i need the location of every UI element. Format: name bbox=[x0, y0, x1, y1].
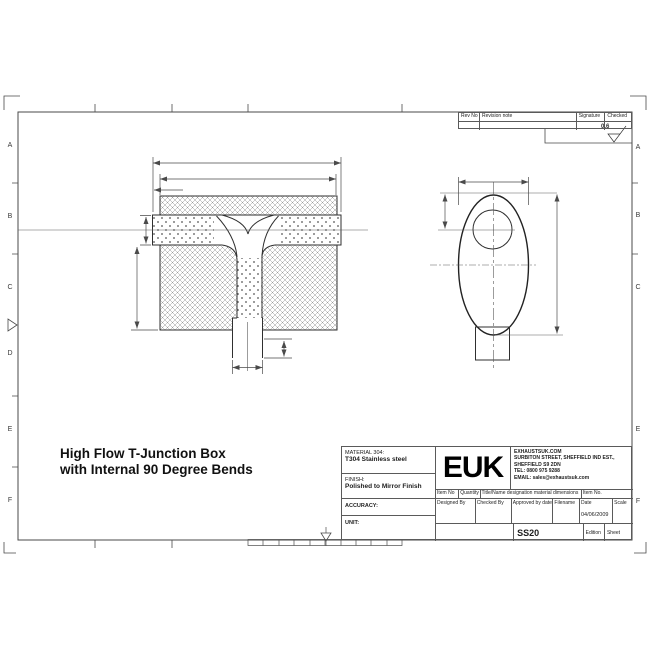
row-label-right-b: B bbox=[633, 212, 643, 220]
drawing-note-line2: with Internal 90 Degree Bends bbox=[60, 462, 253, 478]
row-label-left-e: E bbox=[5, 426, 15, 434]
company-logo: EUK bbox=[436, 447, 511, 490]
row-label-left-d: D bbox=[5, 350, 15, 358]
revision-note-header: Revision note bbox=[480, 113, 577, 121]
accuracy-cell: ACCURACY: bbox=[342, 499, 436, 516]
left-centering-mark bbox=[8, 319, 17, 331]
scale-cell: Scale bbox=[613, 499, 633, 523]
row-label-left-b: B bbox=[5, 213, 15, 221]
main-section-view bbox=[18, 157, 368, 374]
sheet-cell: Sheet bbox=[605, 524, 633, 541]
end-view-dimensions bbox=[445, 177, 557, 334]
finish-value: Polished to Mirror Finish bbox=[345, 483, 435, 490]
drawing-number-row: SS20 Edition Sheet bbox=[436, 524, 633, 541]
surface-finish-value: 0.6 bbox=[601, 124, 609, 130]
designed-by-cell: Designed By bbox=[436, 499, 476, 523]
inlet-pipe-circle bbox=[473, 210, 512, 249]
approval-row: Designed By Checked By Approved by date … bbox=[436, 499, 633, 524]
drawing-number: SS20 bbox=[514, 524, 582, 538]
row-label-left-a: A bbox=[5, 142, 15, 150]
date-value: 04/06/2009 bbox=[581, 512, 609, 518]
quantity-header: Quantity bbox=[459, 490, 480, 498]
designation-header: Title/Name designation material dimensio… bbox=[481, 490, 582, 498]
drawing-number-cell: SS20 bbox=[514, 524, 583, 541]
drawing-sheet: A B C D E F A B C E F Rev No Revision no… bbox=[0, 0, 650, 650]
finish-cell: FINISH: Polished to Mirror Finish bbox=[342, 474, 436, 499]
approved-by-cell: Approved by date bbox=[512, 499, 554, 523]
row-label-right-f: F bbox=[633, 498, 643, 506]
row-label-right-a: A bbox=[633, 144, 643, 152]
row-label-right-e: E bbox=[633, 426, 643, 434]
material-cell: MATERIAL 304: T304 Stainless steel bbox=[342, 447, 436, 474]
material-value: T304 Stainless steel bbox=[345, 456, 435, 463]
address-line-5: EMAIL: sales@exhaustsuk.com bbox=[514, 475, 633, 481]
signature-header: Signature bbox=[577, 113, 606, 121]
unit-cell: UNIT: bbox=[342, 516, 436, 541]
date-cell: Date 04/06/2009 bbox=[580, 499, 613, 523]
empty-cell bbox=[436, 524, 514, 541]
checked-header: Checked bbox=[605, 113, 631, 121]
edition-cell: Edition bbox=[584, 524, 605, 541]
title-block: MATERIAL 304: T304 Stainless steel FINIS… bbox=[341, 446, 632, 540]
parts-header-row: Item No Quantity Title/Name designation … bbox=[436, 490, 633, 499]
revision-table-header: Rev No Revision note Signature Checked bbox=[459, 113, 631, 122]
company-address: EXHAUSTSUK.COM SURBITON STREET, SHEFFIEL… bbox=[511, 447, 633, 490]
checked-by-cell: Checked By bbox=[476, 499, 512, 523]
cad-linework bbox=[0, 0, 650, 650]
filename-cell: Filename bbox=[553, 499, 580, 523]
item-no-header: Item No bbox=[436, 490, 459, 498]
rev-no-header: Rev No bbox=[459, 113, 480, 121]
row-label-left-c: C bbox=[5, 284, 15, 292]
end-view bbox=[430, 177, 563, 371]
drawing-note: High Flow T-Junction Box with Internal 9… bbox=[60, 446, 253, 478]
drawing-note-line1: High Flow T-Junction Box bbox=[60, 446, 253, 462]
item-no2-header: Item No. bbox=[582, 490, 633, 498]
row-label-right-c: C bbox=[633, 284, 643, 292]
row-label-left-f: F bbox=[5, 497, 15, 505]
